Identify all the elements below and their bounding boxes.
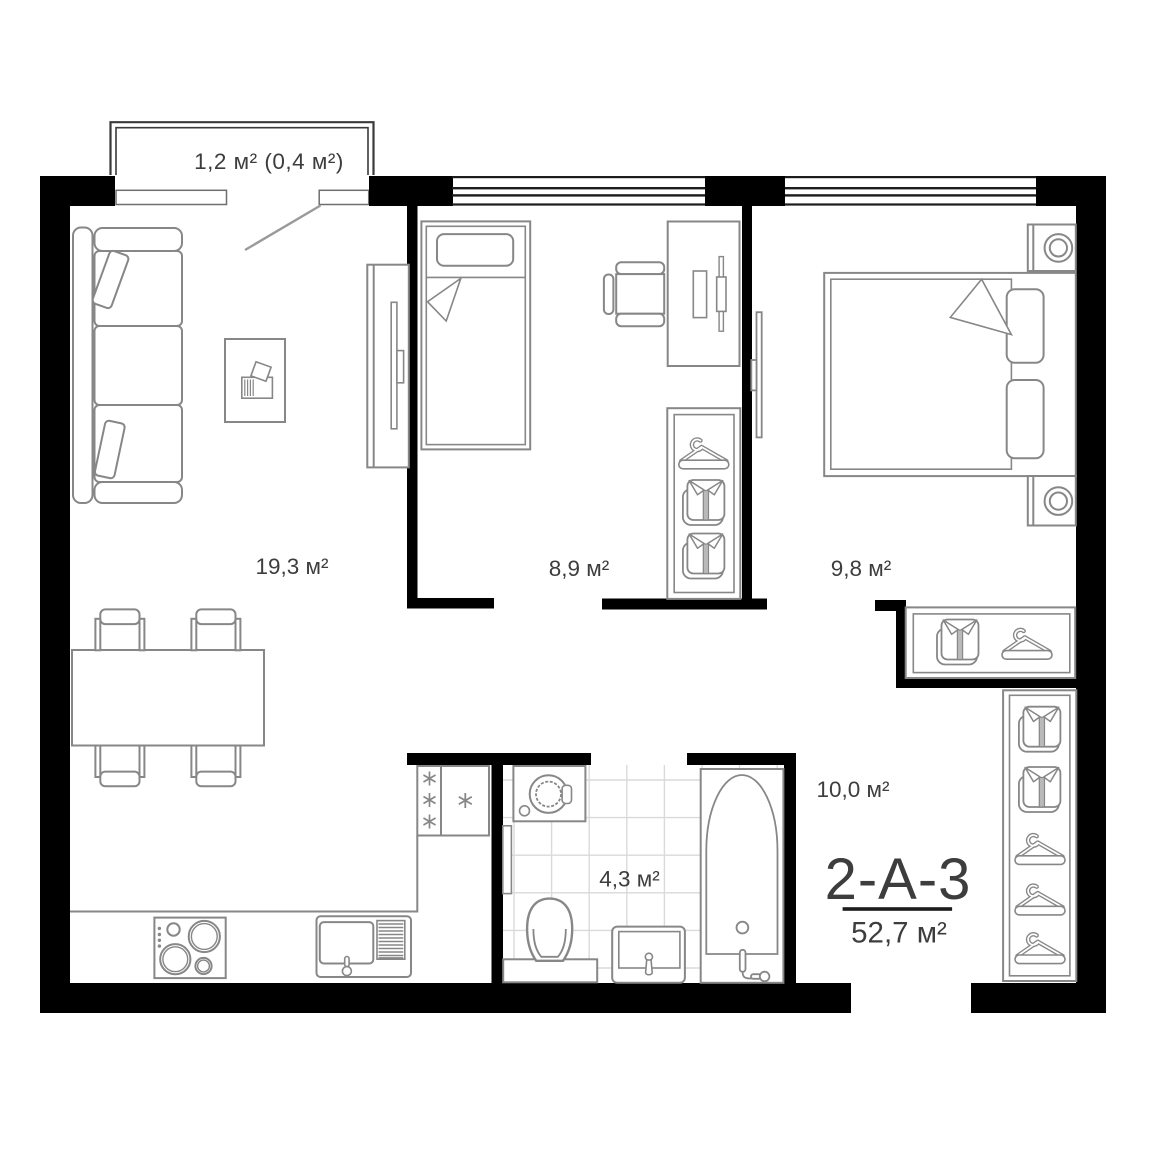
svg-text:8,9 м²: 8,9 м² [549,556,610,581]
svg-text:1,2 м² (0,4 м²): 1,2 м² (0,4 м²) [194,149,344,174]
svg-text:2-А-3: 2-А-3 [825,847,972,912]
svg-text:19,3 м²: 19,3 м² [255,554,329,579]
svg-text:10,0 м²: 10,0 м² [816,777,890,802]
svg-text:52,7 м²: 52,7 м² [851,917,947,950]
svg-text:9,8 м²: 9,8 м² [831,556,892,581]
svg-text:4,3 м²: 4,3 м² [599,867,660,892]
